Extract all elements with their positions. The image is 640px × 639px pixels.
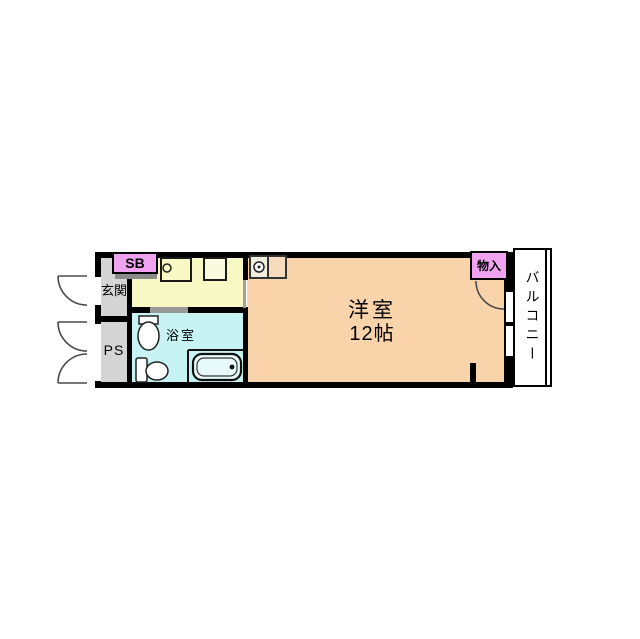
kitchen-sink [203, 257, 227, 281]
wall-kitchen-room [243, 252, 248, 280]
entrance-label: 玄関 [101, 284, 127, 298]
kitchen-counter [160, 257, 192, 282]
window-mullion [506, 322, 513, 326]
bathroom-label-wrap: 浴室 [166, 329, 196, 343]
ps-door-arc-bottom [58, 354, 87, 383]
wall-bottom [95, 382, 513, 388]
closet-box: 物入 [470, 251, 508, 280]
ps-door-arc-top [58, 322, 87, 351]
shoe-box: SB [112, 252, 158, 274]
entrance-door-arc [58, 276, 87, 305]
bathroom-area [132, 309, 244, 383]
wall-entrance-ps [95, 316, 132, 322]
ps-label-wrap: PS [100, 342, 128, 360]
wall-stub [470, 363, 476, 383]
main-room-label-wrap: 洋室 12帖 [247, 299, 497, 345]
floorplan-canvas: SB 物入 バルコニー [0, 0, 640, 639]
main-room-label: 洋室 [348, 299, 396, 322]
balcony-railing [545, 250, 547, 385]
balcony-label: バルコニー [523, 270, 543, 365]
balcony-area: バルコニー [513, 248, 552, 387]
bathroom-door [150, 307, 188, 313]
sink-unit-basin [251, 257, 269, 277]
bathroom-label: 浴室 [166, 328, 196, 343]
closet-label: 物入 [477, 257, 501, 274]
main-room-size-label: 12帖 [349, 323, 394, 345]
shoe-box-label: SB [125, 255, 144, 271]
ps-label: PS [104, 343, 125, 358]
entrance-label-wrap: 玄関 [98, 283, 130, 299]
sink-unit-counter [269, 257, 285, 277]
sink-unit [249, 255, 287, 279]
kitchen-room-opening [243, 280, 246, 308]
